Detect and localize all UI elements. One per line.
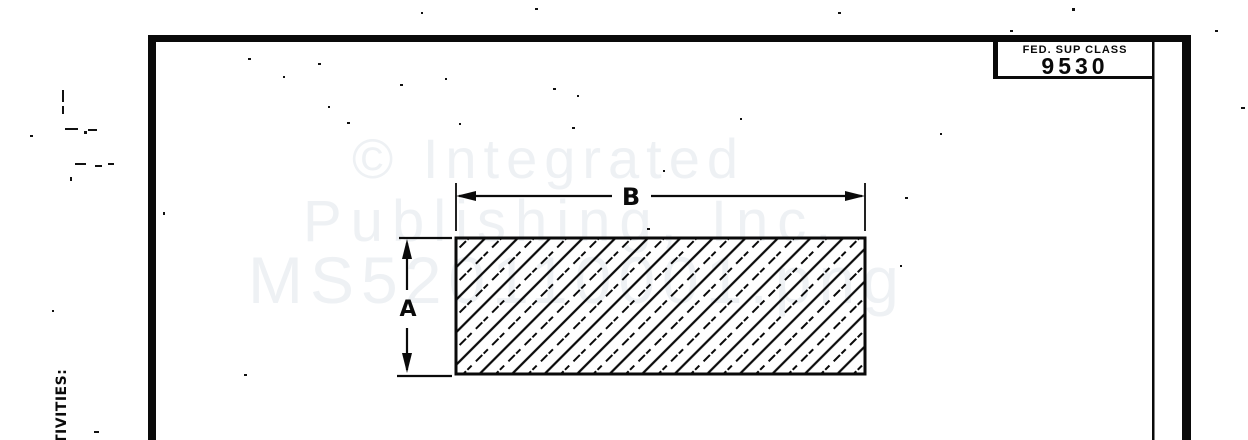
scan-speck — [70, 177, 72, 181]
dimension-A-label: A — [399, 297, 416, 322]
frame-right-outer-border — [1182, 38, 1191, 440]
scan-speck — [84, 131, 87, 134]
scan-speck — [62, 106, 64, 114]
arrowhead-up-icon — [402, 239, 412, 259]
scan-speck — [65, 128, 78, 130]
scan-speck — [347, 122, 350, 124]
scan-speck — [421, 12, 423, 14]
scan-speck — [62, 90, 64, 102]
scan-speck — [445, 78, 447, 80]
frame-left-border — [148, 35, 156, 440]
scan-speck — [244, 374, 247, 376]
dimension-B-label: B — [622, 183, 640, 211]
scan-speck — [248, 58, 251, 60]
arrowhead-right-icon — [845, 191, 865, 201]
scan-speck — [1241, 107, 1245, 109]
margin-activities-text: TIVITIES: — [54, 369, 70, 440]
scan-speck — [88, 129, 97, 131]
scan-speck — [900, 265, 902, 267]
frame-top-border — [150, 35, 1191, 42]
scan-speck — [572, 127, 575, 129]
scan-speck — [328, 106, 330, 108]
scan-speck — [95, 165, 102, 167]
hatched-bar-section — [456, 238, 865, 374]
scan-speck — [75, 163, 86, 165]
scan-speck — [52, 310, 54, 312]
scan-speck — [318, 63, 321, 65]
scan-speck — [1215, 30, 1218, 32]
scan-speck — [30, 135, 33, 137]
scan-speck — [577, 95, 579, 97]
scan-speck — [940, 133, 942, 135]
scan-speck — [283, 76, 285, 78]
scan-speck — [400, 84, 403, 86]
scan-speck — [838, 12, 841, 14]
frame-right-inner-line — [1152, 42, 1155, 440]
scan-speck — [905, 197, 908, 199]
scan-speck — [163, 212, 165, 215]
scan-speck — [647, 228, 650, 230]
fed-sup-class-value: 9530 — [996, 53, 1154, 80]
arrowhead-down-icon — [402, 353, 412, 373]
scan-speck — [740, 118, 742, 120]
scanned-drawing-page: © Integrated Publishing, Inc. MS52011000… — [0, 0, 1248, 440]
arrowhead-left-icon — [456, 191, 476, 201]
scan-speck — [1010, 30, 1013, 32]
scan-speck — [535, 8, 538, 10]
scan-speck — [553, 88, 556, 90]
dimension-B — [456, 183, 865, 231]
scan-speck — [663, 170, 665, 172]
scan-speck — [1072, 8, 1075, 11]
scan-speck — [94, 431, 99, 433]
scan-speck — [459, 123, 461, 125]
scan-speck — [108, 163, 114, 165]
